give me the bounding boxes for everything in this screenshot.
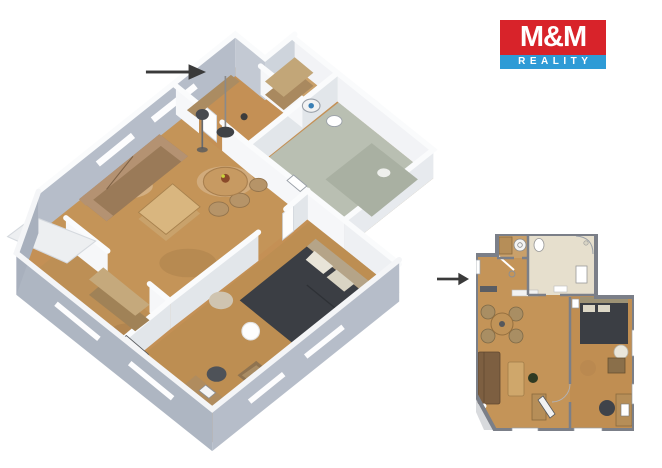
dining-chair bbox=[481, 329, 495, 343]
pendant-lamp bbox=[217, 127, 235, 138]
arrow-head bbox=[189, 64, 206, 80]
radiator bbox=[480, 286, 497, 292]
pouf bbox=[580, 360, 596, 376]
window bbox=[632, 384, 634, 404]
pillow bbox=[598, 305, 610, 312]
laptop bbox=[621, 404, 629, 416]
floor-lamp-shade bbox=[196, 109, 209, 120]
dining-chair bbox=[209, 202, 229, 216]
ceiling-lamp bbox=[241, 113, 248, 120]
cabinet bbox=[499, 237, 512, 254]
arrow-head bbox=[458, 273, 469, 285]
window bbox=[512, 428, 538, 431]
mm-reality-logo: M&M REALITY bbox=[500, 20, 606, 69]
window bbox=[632, 330, 634, 356]
toilet bbox=[534, 239, 544, 252]
washing-machine-door bbox=[308, 103, 314, 109]
door-entry bbox=[476, 260, 480, 274]
page: M&M REALITY bbox=[0, 0, 662, 468]
sofa bbox=[478, 352, 500, 404]
bath-mat bbox=[554, 286, 567, 292]
floorplan-3d bbox=[0, 0, 490, 468]
armchair bbox=[608, 358, 625, 373]
pillow bbox=[583, 305, 595, 312]
window bbox=[574, 428, 602, 431]
plant bbox=[528, 373, 538, 383]
nightstand bbox=[572, 299, 579, 308]
office-chair bbox=[207, 366, 227, 381]
arrow-icon-3d-entrance bbox=[144, 62, 206, 82]
floor-lamp-base bbox=[197, 147, 208, 153]
dining-chair bbox=[481, 305, 495, 319]
arrow-shaft bbox=[437, 278, 459, 281]
shower-light bbox=[377, 168, 390, 177]
dining-chair bbox=[250, 178, 268, 191]
logo-title: M&M bbox=[500, 20, 606, 55]
fruit bbox=[221, 174, 225, 178]
sink bbox=[576, 266, 587, 283]
arrow-icon-2d-plan bbox=[437, 271, 469, 287]
dining-chair bbox=[509, 329, 523, 343]
floorplan-2d bbox=[476, 234, 634, 431]
ball-lamp bbox=[242, 322, 260, 340]
office-chair bbox=[599, 400, 615, 416]
shower-drain bbox=[584, 241, 588, 245]
coffee-table bbox=[508, 362, 524, 396]
toilet bbox=[327, 116, 342, 127]
arrow-shaft bbox=[146, 71, 192, 74]
pouf bbox=[209, 292, 233, 310]
washing-machine bbox=[514, 239, 526, 251]
table-centerpiece bbox=[499, 321, 505, 327]
logo-subtitle: REALITY bbox=[500, 55, 606, 69]
ball-lamp bbox=[614, 345, 628, 359]
